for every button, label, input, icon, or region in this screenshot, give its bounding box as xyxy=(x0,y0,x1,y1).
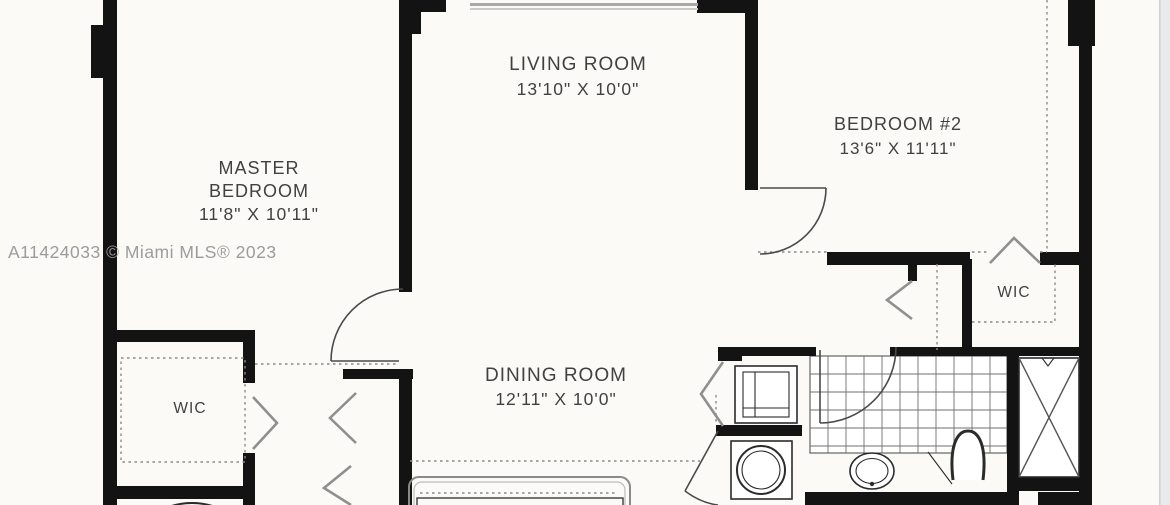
bedroom2-dims: 13'6" X 11'11" xyxy=(839,139,956,158)
master-bedroom-dims: 11'8" X 10'11" xyxy=(199,204,319,224)
bedroom2-label: BEDROOM #2 xyxy=(834,114,962,134)
master-bedroom-label-line1: MASTER xyxy=(218,158,299,178)
living-room-label: LIVING ROOM xyxy=(509,54,647,75)
dining-room-label: DINING ROOM xyxy=(485,365,627,386)
shower-stall xyxy=(1019,358,1079,477)
laundry-unit xyxy=(735,366,797,423)
page-gutter xyxy=(1159,0,1170,505)
floor-plan: LIVING ROOM 13'10" X 10'0" MASTER BEDROO… xyxy=(0,0,1170,505)
dining-room-dims: 12'11" X 10'0" xyxy=(495,389,616,409)
sink xyxy=(850,453,894,489)
wic-right-label: WIC xyxy=(997,284,1030,301)
mls-watermark: A11424033 © Miami MLS® 2023 xyxy=(8,242,277,262)
living-room-dims: 13'10" X 10'0" xyxy=(517,79,640,99)
master-bedroom-label-line2: BEDROOM xyxy=(209,181,309,201)
washer xyxy=(731,441,792,499)
wic-left-label: WIC xyxy=(173,400,206,417)
